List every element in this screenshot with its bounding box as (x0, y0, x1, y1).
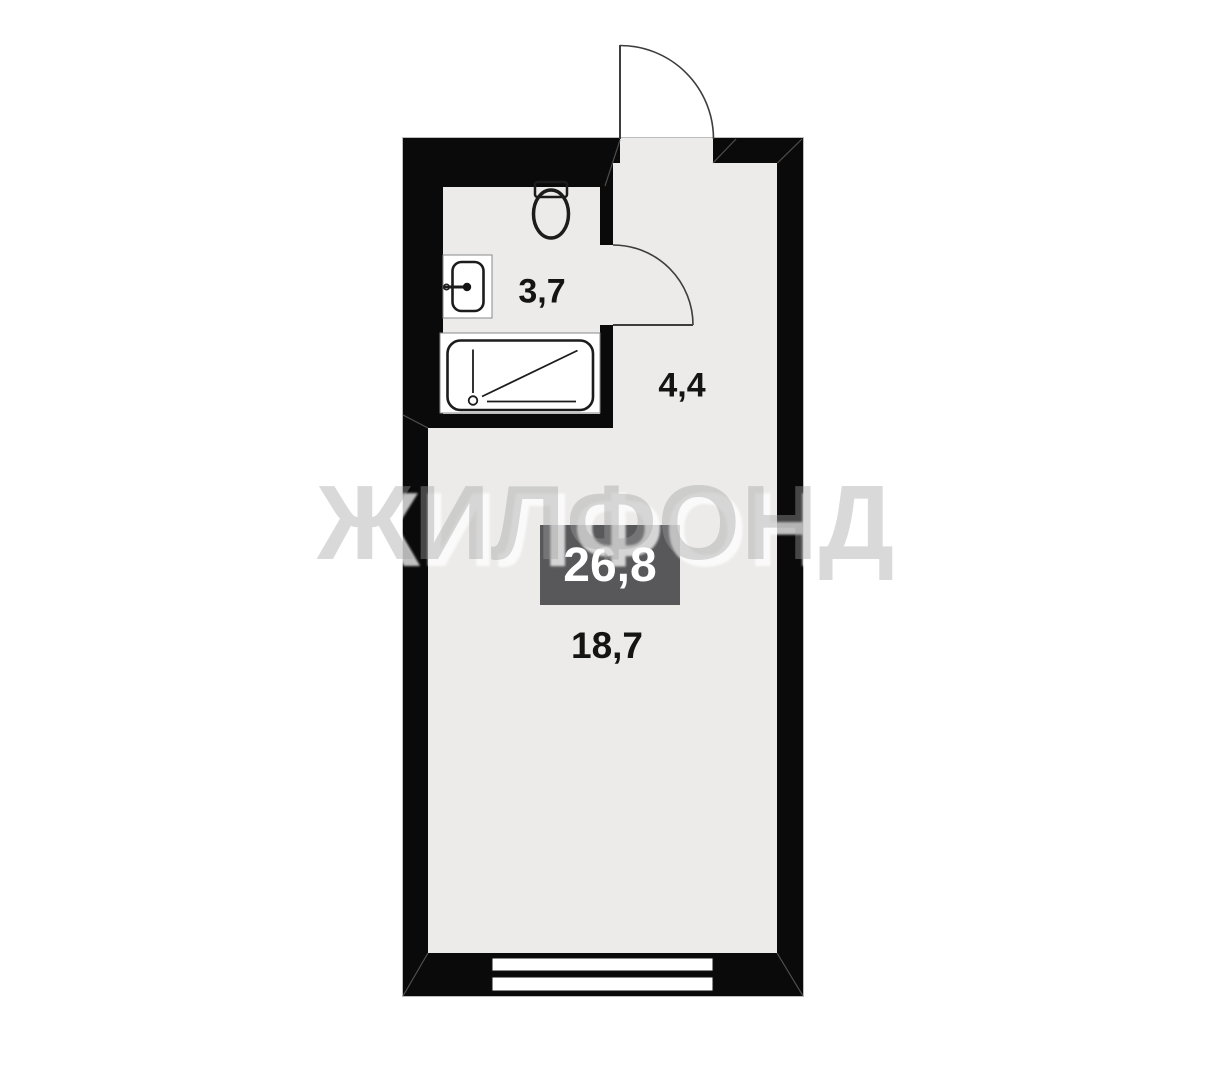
room-area-label: 18,7 (571, 625, 643, 667)
total-area-badge: 26,8 (540, 525, 680, 605)
total-area-value: 26,8 (563, 538, 656, 593)
bathtub-icon (440, 333, 600, 413)
bathroom-area-label: 3,7 (518, 273, 565, 312)
floor-plan: 3,7 4,4 26,8 18,7 ЖИЛФОНД (0, 0, 1206, 1080)
entry-door-icon (620, 45, 714, 139)
sink-icon (443, 255, 492, 318)
hallway-area-label: 4,4 (658, 367, 705, 406)
